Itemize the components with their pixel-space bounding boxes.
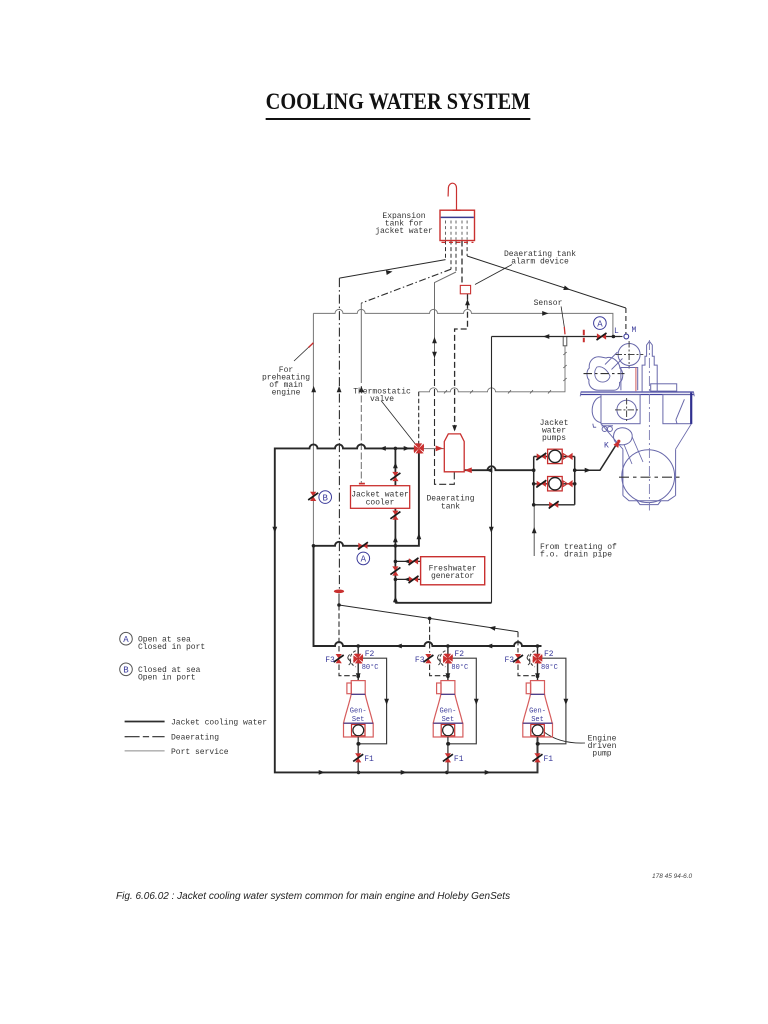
svg-text:A: A [597, 319, 603, 329]
svg-text:f.o. drain pipe: f.o. drain pipe [540, 551, 612, 560]
svg-text:Set: Set [531, 716, 544, 724]
svg-text:F2: F2 [544, 650, 554, 659]
svg-text:F1: F1 [364, 755, 374, 764]
svg-text:80°C: 80°C [541, 663, 558, 672]
svg-text:80°C: 80°C [362, 663, 379, 672]
svg-text:Jacket cooling water: Jacket cooling water [171, 719, 267, 728]
svg-text:M: M [632, 326, 637, 335]
svg-text:pumps: pumps [542, 434, 566, 443]
svg-text:A: A [361, 555, 367, 565]
svg-text:engine: engine [272, 389, 301, 398]
svg-text:Gen-: Gen- [439, 708, 456, 716]
svg-text:Set: Set [442, 716, 455, 724]
svg-text:Set: Set [352, 716, 365, 724]
svg-text:F3: F3 [325, 656, 335, 665]
svg-text:tank: tank [441, 502, 460, 511]
svg-text:Gen-: Gen- [350, 708, 367, 716]
svg-text:F2: F2 [365, 650, 375, 659]
svg-text:80°C: 80°C [451, 663, 468, 672]
svg-text:F3: F3 [505, 656, 515, 665]
svg-text:cooler: cooler [366, 498, 395, 507]
svg-text:Sensor: Sensor [534, 299, 563, 308]
svg-text:F2: F2 [454, 650, 464, 659]
svg-text:jacket water: jacket water [375, 227, 433, 236]
svg-text:Open in port: Open in port [138, 674, 196, 683]
svg-text:Gen-: Gen- [529, 708, 546, 716]
svg-text:pump: pump [592, 750, 611, 759]
svg-text:A: A [123, 635, 129, 645]
svg-text:K: K [604, 442, 609, 451]
svg-text:generator: generator [431, 572, 474, 581]
svg-text:L: L [614, 327, 619, 336]
svg-text:B: B [322, 493, 328, 503]
svg-text:Closed in port: Closed in port [138, 643, 205, 652]
svg-text:Port service: Port service [171, 748, 229, 757]
svg-text:alarm device: alarm device [511, 258, 569, 267]
svg-text:F1: F1 [454, 755, 464, 764]
svg-text:F3: F3 [415, 656, 425, 665]
svg-text:F1: F1 [544, 755, 554, 764]
svg-text:Deaerating: Deaerating [171, 734, 219, 743]
svg-text:B: B [123, 666, 129, 676]
svg-text:valve: valve [370, 395, 394, 404]
